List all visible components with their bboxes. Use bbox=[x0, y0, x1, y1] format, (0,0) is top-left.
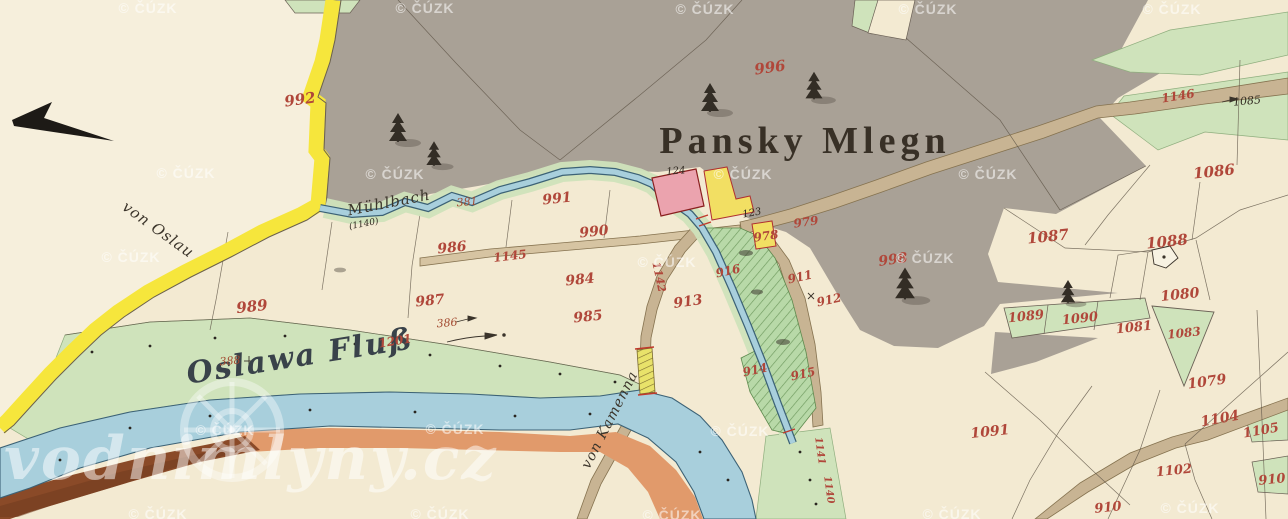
cuzk-watermark: © ČÚZK bbox=[713, 166, 772, 182]
parcel-number: 989 bbox=[236, 298, 269, 316]
parcel-number: 991 bbox=[542, 191, 573, 208]
parcel-number: 914 bbox=[741, 362, 768, 379]
parcel-number: 1086 bbox=[1192, 162, 1235, 181]
parcel-number: 979 bbox=[793, 214, 819, 229]
cuzk-watermark: © ČÚZK bbox=[101, 249, 160, 265]
road-number: 1140 bbox=[821, 476, 835, 505]
cuzk-watermark: © ČÚZK bbox=[1142, 1, 1201, 17]
parcel-number-black: (1140) bbox=[348, 218, 379, 233]
cuzk-watermark: © ČÚZK bbox=[128, 506, 187, 519]
road-number: 1141 bbox=[812, 437, 826, 466]
survey-number: 381 bbox=[456, 196, 478, 209]
cuzk-watermark: © ČÚZK bbox=[922, 506, 981, 519]
cuzk-watermark: © ČÚZK bbox=[898, 1, 957, 17]
place-name: von Kamenna bbox=[579, 369, 640, 471]
parcel-number: 996 bbox=[753, 58, 786, 77]
parcel-number-black: 123 bbox=[742, 207, 763, 220]
parcel-number: 1102 bbox=[1155, 463, 1192, 480]
parcel-number: 990 bbox=[579, 224, 610, 241]
parcel-number: 1091 bbox=[970, 423, 1010, 441]
parcel-number: 1089 bbox=[1007, 309, 1044, 326]
cuzk-watermark: © ČÚZK bbox=[118, 0, 177, 16]
parcel-number: 1104 bbox=[1200, 409, 1241, 430]
parcel-number-black: 1085 bbox=[1233, 94, 1262, 107]
parcel-number: 978 bbox=[753, 228, 779, 243]
parcel-number: 912 bbox=[815, 292, 842, 309]
cuzk-watermark: © ČÚZK bbox=[675, 1, 734, 17]
parcel-number: 1105 bbox=[1242, 421, 1280, 440]
parcel-number: 910 bbox=[1258, 472, 1286, 488]
cuzk-watermark: © ČÚZK bbox=[156, 165, 215, 181]
cuzk-watermark: © ČÚZK bbox=[710, 423, 769, 439]
cuzk-watermark: © ČÚZK bbox=[1160, 500, 1219, 516]
parcel-number: 1083 bbox=[1167, 325, 1201, 340]
parcel-number: 916 bbox=[714, 263, 741, 280]
road-number: 1146 bbox=[1161, 87, 1196, 104]
parcel-number: 1080 bbox=[1160, 286, 1200, 304]
brand-watermark: vodnimlyny.cz bbox=[4, 424, 498, 494]
parcel-number: 910 bbox=[1094, 500, 1122, 516]
parcel-number: 1081 bbox=[1115, 320, 1152, 337]
cuzk-watermark: © ČÚZK bbox=[395, 0, 454, 16]
parcel-number: 992 bbox=[283, 90, 316, 109]
parcel-number: 911 bbox=[786, 269, 813, 286]
parcel-number: 985 bbox=[573, 309, 604, 326]
parcel-number-black: 124 bbox=[666, 166, 686, 178]
road-number: 1145 bbox=[493, 248, 528, 264]
parcel-number: 984 bbox=[565, 272, 596, 289]
parcel-number: 987 bbox=[415, 293, 446, 310]
parcel-number: 1087 bbox=[1026, 227, 1069, 246]
cuzk-watermark: © ČÚZK bbox=[642, 507, 701, 519]
cuzk-watermark: © ČÚZK bbox=[365, 166, 424, 182]
parcel-number: 1088 bbox=[1145, 232, 1188, 251]
place-name: Mühlbach bbox=[346, 188, 431, 219]
parcel-number: 915 bbox=[789, 366, 816, 383]
parcel-number: 913 bbox=[673, 293, 704, 311]
survey-number: 388 bbox=[219, 355, 241, 368]
parcel-number: 1079 bbox=[1187, 372, 1228, 391]
cuzk-watermark: © ČÚZK bbox=[410, 506, 469, 519]
survey-number: 386 bbox=[436, 317, 458, 330]
cuzk-watermark: © ČÚZK bbox=[637, 254, 696, 270]
parcel-number: 1090 bbox=[1061, 311, 1098, 328]
cuzk-watermark: © ČÚZK bbox=[895, 250, 954, 266]
parcel-number: 986 bbox=[437, 240, 468, 257]
cuzk-watermark: © ČÚZK bbox=[958, 166, 1017, 182]
cadastral-map-viewport: Pansky Mlegn von OslauMühlbach(1140)Osla… bbox=[0, 0, 1288, 519]
